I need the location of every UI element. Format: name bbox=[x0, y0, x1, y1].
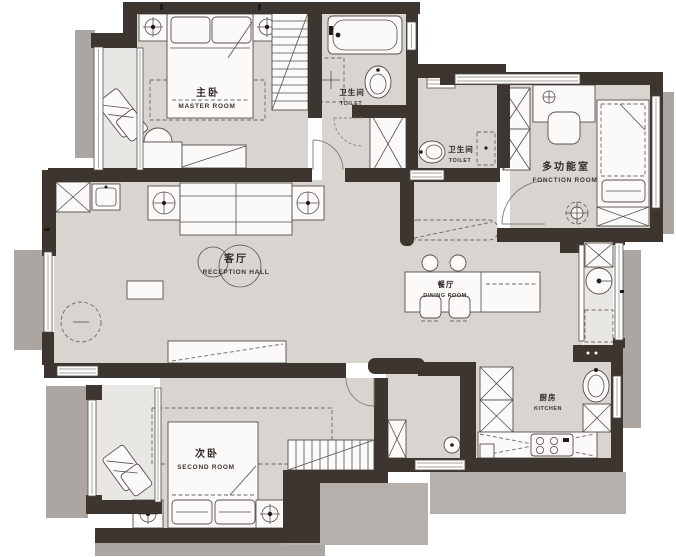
master-balcony-slider bbox=[137, 48, 143, 170]
toilet-fixture-main bbox=[365, 66, 391, 98]
function-right-window bbox=[652, 96, 660, 208]
room-name-zh: 客厅 bbox=[223, 252, 248, 265]
lamp-icon bbox=[162, 201, 166, 205]
function-top-window bbox=[455, 74, 580, 84]
balcony-right-cabinet bbox=[585, 243, 613, 267]
laundry-cabinet bbox=[56, 182, 120, 212]
room-name-en: TOILET bbox=[449, 158, 472, 164]
kitchen-tall-cabinets bbox=[480, 367, 513, 432]
hall-closet bbox=[370, 112, 406, 176]
lamp-icon bbox=[265, 25, 269, 29]
second-balcony-slider bbox=[155, 388, 161, 502]
bath-window bbox=[407, 22, 416, 50]
room-name-zh: 卫生间 bbox=[339, 87, 365, 97]
dining-chair bbox=[422, 255, 438, 271]
lamp-icon bbox=[268, 512, 272, 516]
room-name-en: KITCHEN bbox=[534, 406, 562, 412]
room-name-en: FONCTION ROOM bbox=[532, 177, 597, 184]
toilet2-door-threshold bbox=[410, 170, 444, 180]
entry-door-threshold bbox=[415, 460, 465, 470]
master-nightstand-left bbox=[139, 14, 167, 41]
room-label-function: 多功能室 FONCTION ROOM bbox=[532, 160, 597, 184]
dining-chair bbox=[420, 296, 441, 318]
lamp-icon bbox=[306, 201, 310, 205]
room-name-en: SECOND ROOM bbox=[177, 464, 235, 471]
floor-plan-drawing: 主卧 MASTER ROOM 卫生间 TOILET 卫生间 TOILET 多功能… bbox=[0, 0, 676, 557]
room-name-zh: 餐厅 bbox=[437, 279, 455, 289]
entry-stool-dot bbox=[450, 443, 454, 447]
kitchen-cabinet-right bbox=[583, 404, 611, 432]
wall-dot bbox=[586, 351, 590, 355]
room-name-en: MASTER ROOM bbox=[178, 103, 235, 110]
washing-machine bbox=[586, 268, 612, 294]
dining-chair bbox=[450, 255, 466, 271]
tub-faucet-icon bbox=[336, 33, 341, 38]
living-bottom-window bbox=[57, 366, 98, 376]
room-name-zh: 主卧 bbox=[196, 86, 220, 99]
wall-dot bbox=[594, 351, 598, 355]
toilet-fixture-second bbox=[419, 141, 445, 163]
second-bookshelf bbox=[288, 440, 374, 470]
bathtub bbox=[328, 16, 402, 54]
room-name-en: TOILET bbox=[340, 101, 363, 107]
corridor-cabinet bbox=[388, 420, 406, 458]
floor-plan-page: 主卧 MASTER ROOM 卫生间 TOILET 卫生间 TOILET 多功能… bbox=[0, 0, 676, 557]
side-cabinet bbox=[127, 281, 163, 299]
room-name-zh: 次卧 bbox=[195, 447, 219, 460]
room-name-en: RECEPTION HALL bbox=[203, 269, 270, 276]
second-bed bbox=[168, 422, 258, 528]
balcony-right-slider bbox=[579, 245, 584, 341]
kitchen-counter bbox=[478, 432, 597, 458]
function-single-bed bbox=[597, 100, 649, 226]
kitchen-right-window bbox=[613, 376, 621, 418]
second-nightstand-right bbox=[256, 500, 284, 528]
living-left-window bbox=[44, 252, 52, 332]
room-name-en: DINING ROOM bbox=[423, 293, 466, 299]
room-name-zh: 多功能室 bbox=[542, 160, 590, 173]
dining-chair bbox=[449, 296, 470, 318]
shower-icon bbox=[329, 26, 333, 35]
tv-console bbox=[168, 341, 286, 363]
second-balcony-window bbox=[88, 400, 96, 496]
room-name-zh: 卫生间 bbox=[448, 144, 474, 154]
room-name-zh: 厨房 bbox=[540, 392, 557, 402]
stove-icon bbox=[531, 434, 573, 456]
master-balcony-window bbox=[94, 47, 103, 170]
lamp-icon bbox=[151, 25, 155, 29]
master-wardrobe bbox=[272, 13, 308, 110]
